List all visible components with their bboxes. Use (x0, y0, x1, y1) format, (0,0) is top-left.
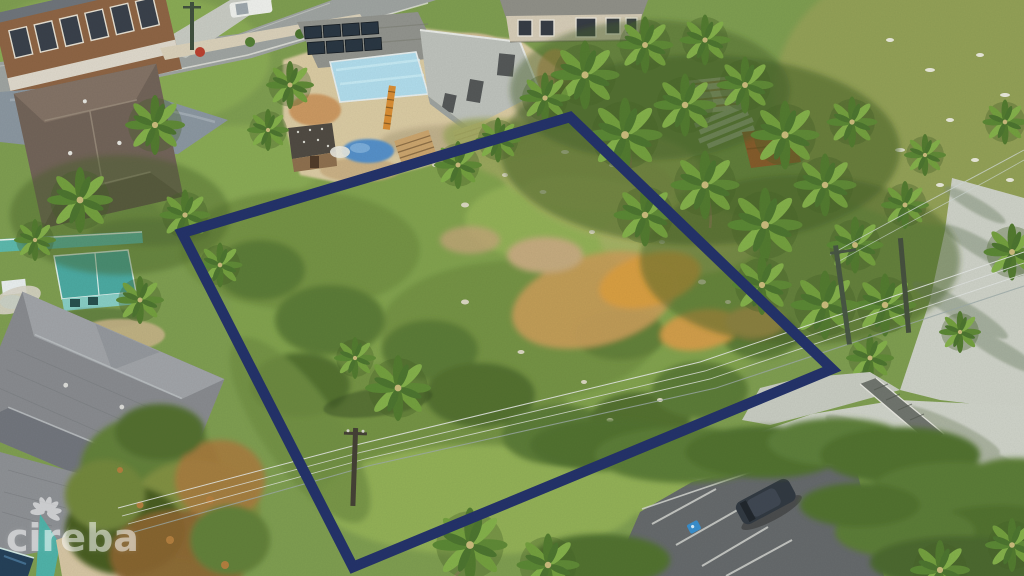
aerial-photo (0, 0, 1024, 576)
sunlight-grade (0, 0, 1024, 576)
aerial-photo-stage: cireba (0, 0, 1024, 576)
